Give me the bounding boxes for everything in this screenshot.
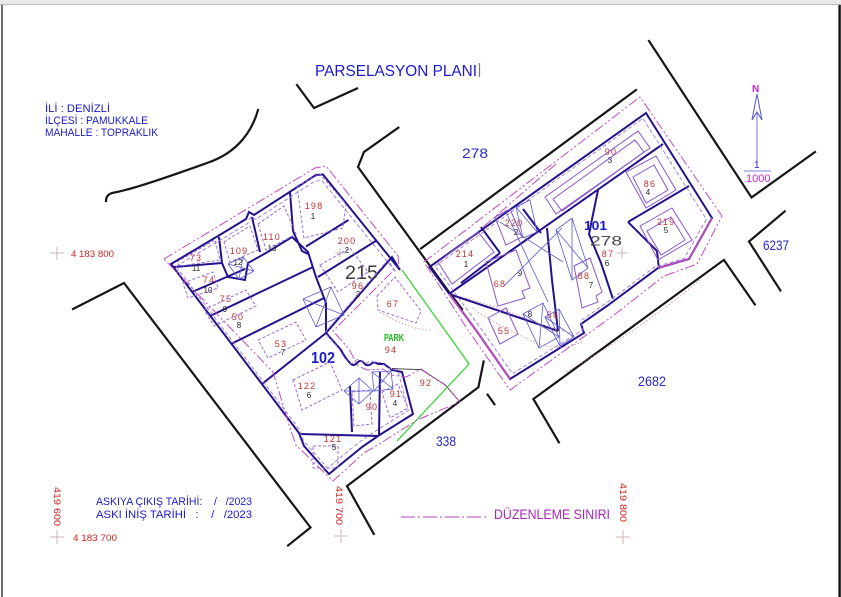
svg-text:74: 74 (203, 275, 215, 285)
svg-text:6: 6 (605, 259, 610, 268)
svg-text:109: 109 (230, 246, 249, 256)
svg-text:278: 278 (590, 234, 622, 249)
svg-text:1: 1 (311, 212, 316, 221)
svg-text:75: 75 (220, 294, 232, 304)
svg-text:92: 92 (420, 378, 432, 388)
svg-text:4: 4 (646, 188, 651, 197)
svg-text:N: N (752, 84, 759, 95)
svg-text:87: 87 (602, 249, 614, 259)
svg-text:91: 91 (390, 389, 402, 399)
svg-text:338: 338 (436, 433, 456, 449)
svg-text:214: 214 (456, 249, 475, 259)
svg-text:ASKIYA ÇIKIŞ TARİHİ: / /2: ASKIYA ÇIKIŞ TARİHİ: / /2023 (96, 495, 252, 508)
svg-text:1000: 1000 (746, 173, 770, 185)
svg-text:8: 8 (237, 321, 242, 330)
svg-text:6: 6 (307, 391, 312, 400)
svg-text:6237: 6237 (763, 237, 789, 253)
svg-text:9: 9 (518, 269, 523, 278)
svg-text:110: 110 (263, 232, 281, 242)
svg-text:419 700: 419 700 (333, 486, 344, 525)
svg-text:200: 200 (338, 236, 357, 246)
svg-text:67: 67 (387, 299, 399, 309)
svg-text:215: 215 (345, 263, 378, 284)
svg-text:55: 55 (498, 326, 510, 336)
svg-text:PARK: PARK (384, 332, 404, 344)
svg-text:90: 90 (366, 402, 378, 412)
svg-text:ASKI İNİŞ TARİHİ : / /2: ASKI İNİŞ TARİHİ : / /2023 (96, 508, 252, 521)
svg-text:PARSELASYON PLANI: PARSELASYON PLANI (315, 63, 477, 80)
svg-text:11: 11 (192, 264, 201, 273)
svg-text:1: 1 (754, 160, 760, 171)
svg-text:278: 278 (462, 145, 488, 161)
svg-text:İLÇESİ : PAMUKKALE: İLÇESİ : PAMUKKALE (45, 114, 148, 127)
svg-text:4 183 800: 4 183 800 (71, 249, 114, 260)
svg-text:68: 68 (494, 279, 506, 289)
svg-text:73: 73 (190, 253, 202, 263)
svg-text:4 183 700: 4 183 700 (73, 533, 117, 544)
svg-text:4: 4 (393, 399, 398, 408)
svg-text:MAHALLE : TOPRAKLIK: MAHALLE : TOPRAKLIK (45, 127, 159, 139)
svg-text:7: 7 (281, 348, 286, 357)
svg-text:2: 2 (345, 246, 350, 255)
svg-text:7: 7 (589, 281, 594, 290)
svg-text:122: 122 (298, 381, 317, 391)
svg-text:1: 1 (464, 260, 469, 269)
svg-text:102: 102 (311, 350, 335, 367)
svg-text:DÜZENLEME SINIRI: DÜZENLEME SINIRI (494, 507, 610, 522)
svg-text:94: 94 (385, 345, 397, 355)
svg-text:198: 198 (305, 201, 324, 211)
svg-text:101: 101 (584, 219, 607, 233)
svg-text:2682: 2682 (638, 373, 666, 389)
svg-text:88: 88 (578, 271, 590, 281)
svg-text:9: 9 (223, 305, 228, 314)
svg-text:419 800: 419 800 (617, 483, 628, 522)
svg-text:419 600: 419 600 (51, 487, 62, 526)
svg-text:İLİ : DENİZLİ: İLİ : DENİZLİ (45, 102, 110, 115)
svg-text:5: 5 (332, 443, 337, 452)
svg-text:5: 5 (664, 226, 669, 235)
